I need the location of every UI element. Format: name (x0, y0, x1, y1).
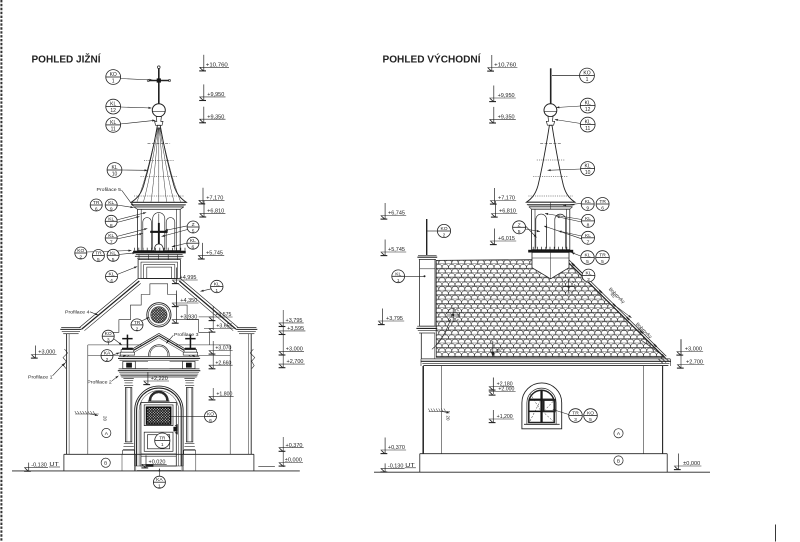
svg-text:+3,070: +3,070 (215, 346, 231, 352)
svg-text:KL: KL (214, 282, 220, 288)
svg-text:KL: KL (109, 272, 115, 278)
svg-text:+10,760: +10,760 (494, 63, 516, 69)
svg-text:8: 8 (110, 223, 113, 229)
svg-text:2: 2 (79, 255, 82, 261)
svg-text:2: 2 (443, 233, 446, 239)
svg-text:45°: 45° (496, 348, 503, 354)
svg-text:KA: KA (104, 351, 111, 357)
svg-text:+10,760: +10,760 (206, 62, 228, 68)
svg-text:+2,660: +2,660 (215, 360, 231, 366)
svg-text:KL: KL (585, 253, 591, 259)
svg-text:+4,995: +4,995 (180, 275, 197, 281)
svg-text:12: 12 (110, 108, 116, 114)
svg-text:9: 9 (586, 206, 589, 212)
svg-text:±0,000: ±0,000 (285, 458, 302, 464)
svg-text:KL: KL (190, 238, 196, 244)
svg-text:+6,745: +6,745 (388, 211, 405, 217)
svg-text:6: 6 (95, 207, 98, 213)
svg-text:KL: KL (111, 165, 117, 171)
svg-text:1: 1 (112, 79, 115, 85)
svg-text:B: B (104, 461, 107, 467)
svg-text:+1,800: +1,800 (216, 391, 232, 397)
svg-text:-0,130: -0,130 (31, 463, 47, 469)
svg-text:+3,795: +3,795 (286, 318, 303, 324)
svg-text:B: B (617, 458, 620, 464)
svg-text:KL: KL (585, 199, 591, 205)
svg-text:KL: KL (110, 120, 116, 126)
svg-text:12: 12 (585, 107, 591, 113)
svg-text:KL: KL (108, 233, 114, 239)
svg-text:+0,020: +0,020 (149, 459, 166, 465)
svg-text:KA: KA (156, 477, 163, 483)
svg-text:KL: KL (110, 250, 116, 256)
svg-text:TR: TR (93, 200, 100, 206)
svg-text:Profilace 3: Profilace 3 (174, 332, 199, 337)
svg-text:KO: KO (587, 411, 594, 417)
svg-text:+9,350: +9,350 (207, 114, 224, 120)
svg-text:TR: TR (599, 253, 606, 259)
svg-text:TR: TR (95, 251, 102, 257)
svg-text:+3,575: +3,575 (215, 312, 231, 318)
svg-text:+3,000: +3,000 (38, 350, 55, 356)
svg-text:KO: KO (207, 411, 214, 417)
svg-text:8: 8 (587, 223, 590, 229)
svg-text:+6,810: +6,810 (207, 209, 224, 215)
svg-text:KO: KO (110, 72, 117, 78)
svg-text:+3,000: +3,000 (685, 347, 702, 353)
svg-text:20: 20 (446, 416, 451, 421)
svg-text:6: 6 (192, 245, 195, 251)
svg-text:6: 6 (601, 206, 604, 212)
svg-text:KL: KL (395, 271, 401, 277)
svg-text:5: 5 (586, 259, 589, 265)
svg-text:4: 4 (110, 278, 113, 284)
svg-text:1: 1 (586, 77, 589, 83)
svg-text:Z: Z (518, 222, 521, 228)
svg-text:+2,700: +2,700 (686, 360, 703, 366)
svg-text:KL: KL (585, 120, 591, 126)
svg-text:TR: TR (134, 320, 141, 326)
svg-text:3: 3 (574, 417, 577, 423)
svg-text:+2,700: +2,700 (287, 359, 304, 365)
svg-text:11: 11 (585, 126, 590, 132)
svg-text:1: 1 (161, 442, 164, 447)
svg-text:5: 5 (112, 257, 115, 263)
svg-text:KL: KL (108, 200, 114, 206)
svg-text:5: 5 (97, 257, 100, 263)
svg-text:1: 1 (397, 278, 400, 284)
svg-text:+5,745: +5,745 (388, 247, 405, 253)
svg-text:KL: KL (585, 216, 591, 222)
svg-text:TR: TR (599, 199, 606, 205)
svg-text:Profilace 2: Profilace 2 (87, 379, 112, 384)
svg-text:KL: KL (586, 271, 592, 277)
svg-text:2: 2 (136, 326, 139, 332)
svg-text:11: 11 (111, 127, 116, 133)
svg-text:+4,350: +4,350 (180, 298, 197, 304)
svg-text:5: 5 (589, 417, 592, 423)
svg-text:+3,595: +3,595 (287, 326, 304, 332)
svg-text:+9,950: +9,950 (498, 93, 515, 99)
svg-text:Profilace 4: Profilace 4 (65, 310, 90, 315)
svg-text:+9,950: +9,950 (207, 92, 224, 98)
svg-text:KL: KL (585, 101, 591, 107)
svg-text:+6,015: +6,015 (498, 236, 515, 242)
svg-text:+3,795: +3,795 (386, 316, 403, 322)
svg-text:1: 1 (158, 484, 161, 490)
svg-text:+6,810: +6,810 (499, 209, 516, 215)
svg-text:+1,200: +1,200 (497, 414, 513, 420)
svg-text:+5,745: +5,745 (206, 251, 223, 257)
svg-text:7: 7 (110, 240, 113, 246)
svg-text:9: 9 (110, 207, 113, 213)
svg-text:TR: TR (159, 436, 166, 441)
svg-text:+3,655: +3,655 (216, 324, 232, 330)
svg-text:1: 1 (215, 288, 218, 294)
svg-text:+7,170: +7,170 (498, 196, 515, 202)
svg-text:KL: KL (585, 233, 591, 239)
svg-text:Profilace 5: Profilace 5 (97, 187, 122, 192)
svg-text:+0,370: +0,370 (388, 445, 405, 451)
svg-text:2: 2 (106, 357, 109, 363)
svg-text:+2,000: +2,000 (498, 387, 514, 393)
svg-text:7: 7 (587, 239, 590, 245)
svg-text:KO: KO (77, 248, 84, 254)
svg-text:Profilace 1: Profilace 1 (28, 374, 53, 379)
svg-text:+3,930: +3,930 (180, 315, 197, 321)
svg-text:KL: KL (110, 102, 116, 108)
svg-text:Z: Z (192, 222, 195, 228)
svg-text:KO: KO (440, 226, 447, 232)
svg-text:+9,350: +9,350 (498, 115, 515, 121)
svg-text:+7,170: +7,170 (206, 195, 223, 201)
svg-text:-0,130: -0,130 (388, 464, 404, 470)
svg-text:KL: KL (585, 164, 591, 170)
svg-text:TR: TR (572, 411, 579, 417)
svg-text:KO: KO (583, 71, 590, 77)
svg-text:10: 10 (112, 172, 118, 178)
svg-text:POHLED JIŽNÍ: POHLED JIŽNÍ (32, 54, 101, 66)
svg-text:10: 10 (585, 170, 591, 176)
svg-text:+2,220: +2,220 (151, 376, 168, 382)
svg-text:5: 5 (192, 229, 195, 235)
svg-text:6: 6 (209, 418, 212, 424)
svg-text:KO: KO (105, 331, 112, 337)
svg-text:+3,000: +3,000 (286, 347, 303, 353)
svg-text:+0,370: +0,370 (286, 443, 303, 449)
svg-text:3: 3 (107, 338, 110, 344)
svg-text:5: 5 (601, 259, 604, 265)
svg-text:±0,000: ±0,000 (683, 461, 700, 467)
svg-text:POHLED VÝCHODNÍ: POHLED VÝCHODNÍ (383, 54, 481, 66)
svg-text:KL: KL (108, 216, 114, 222)
svg-text:20: 20 (103, 416, 108, 421)
svg-text:2: 2 (587, 277, 590, 283)
svg-text:5: 5 (518, 229, 521, 235)
